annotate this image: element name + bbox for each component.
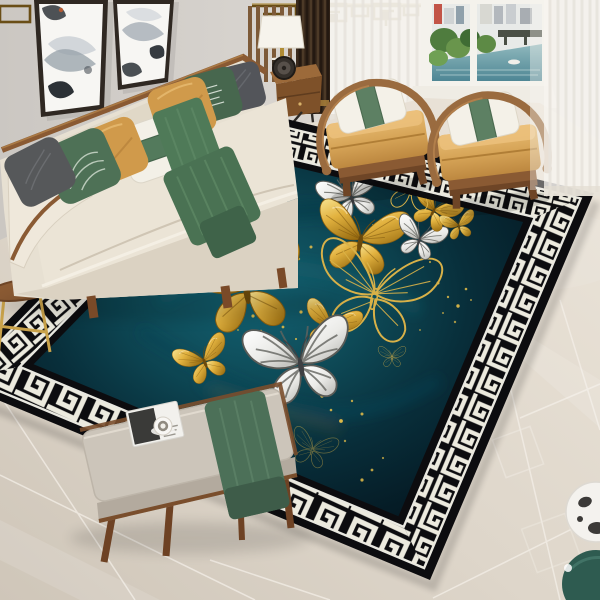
gold-sparkle [351,400,353,402]
bench-leg [166,505,170,556]
gold-sparkle [382,457,384,459]
gold-sparkle [282,326,285,329]
gold-sparkle [371,469,374,472]
gold-sparkle [339,419,343,423]
gold-sparkle [447,296,449,298]
gold-sparkle [454,321,456,323]
gold-sparkle [344,440,346,442]
window-view [428,2,542,81]
gold-sparkle [361,413,364,416]
sheer-curtain-right [530,0,600,196]
gold-sparkle [295,338,297,340]
gold-sparkle [442,312,444,314]
gold-sparkle [237,329,239,331]
desk-fan [273,57,295,79]
living-room-photo [0,0,600,600]
gold-sparkle [419,329,421,331]
floor-highlight-dot [564,564,572,572]
gold-sparkle [456,304,459,307]
gold-sparkle [330,409,333,412]
gold-sparkle [470,299,472,301]
gold-sparkle [465,288,468,291]
art-frame-2 [113,0,179,94]
art-frame-1 [34,0,114,121]
gold-sparkle [429,261,431,263]
gold-sparkle [310,246,313,249]
gold-sparkle [360,478,363,481]
window [425,0,548,92]
